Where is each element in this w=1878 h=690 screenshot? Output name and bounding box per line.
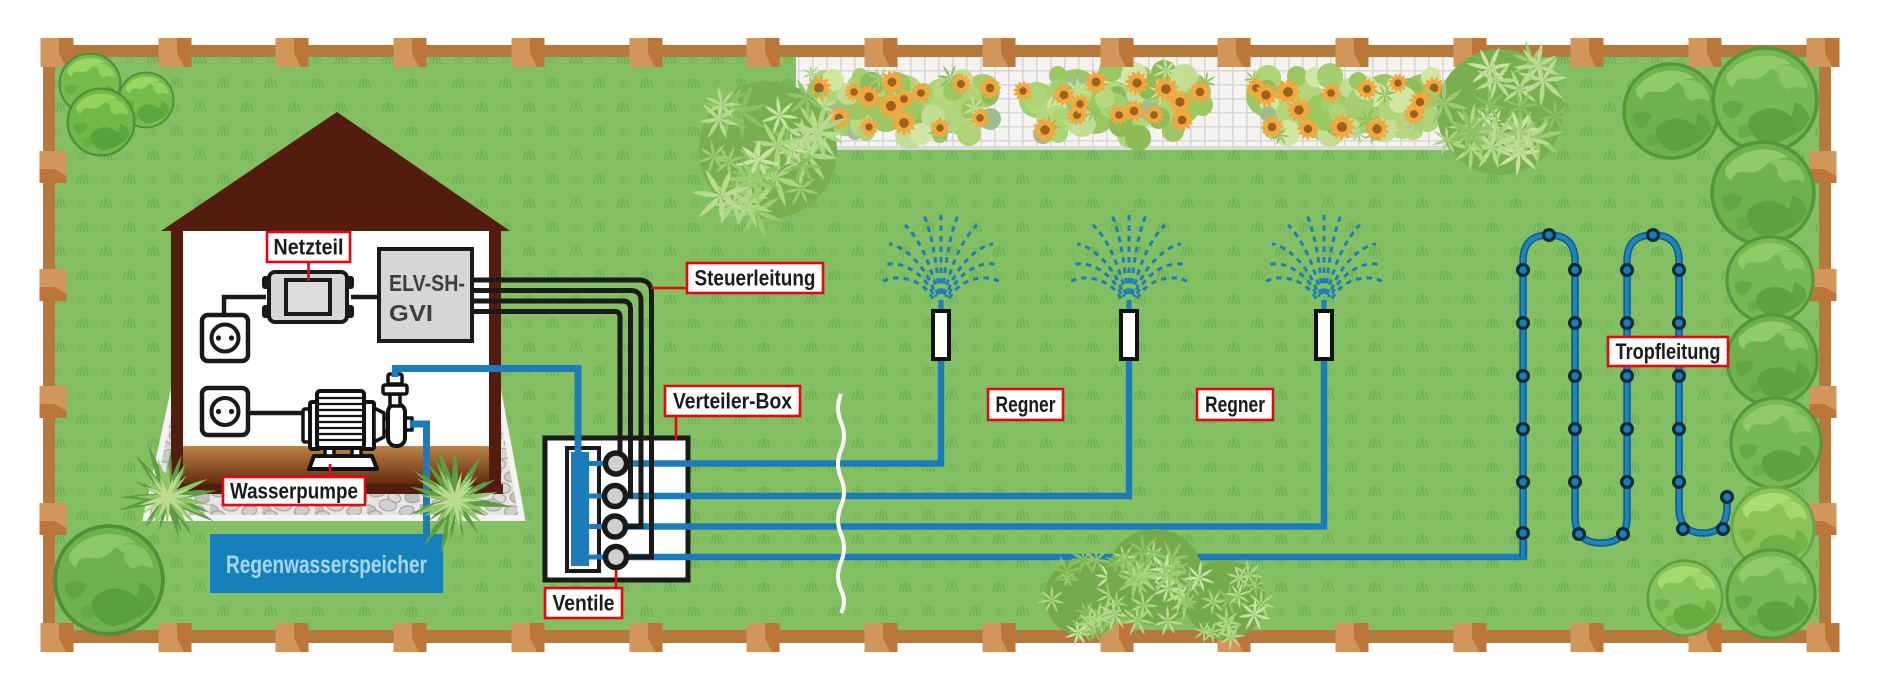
- svg-text:GVI: GVI: [389, 300, 433, 326]
- svg-text:Netzteil: Netzteil: [274, 235, 344, 260]
- svg-text:Wasserpumpe: Wasserpumpe: [230, 479, 358, 504]
- svg-text:Verteiler-Box: Verteiler-Box: [673, 389, 793, 414]
- svg-text:Tropfleitung: Tropfleitung: [1616, 339, 1721, 364]
- svg-text:Steuerleitung: Steuerleitung: [695, 266, 816, 291]
- svg-text:ELV-SH-: ELV-SH-: [389, 270, 465, 296]
- svg-text:Regner: Regner: [1205, 392, 1265, 417]
- svg-text:Ventile: Ventile: [553, 591, 615, 616]
- svg-text:Regner: Regner: [996, 392, 1056, 417]
- svg-text:Regenwasserspeicher: Regenwasserspeicher: [226, 551, 427, 579]
